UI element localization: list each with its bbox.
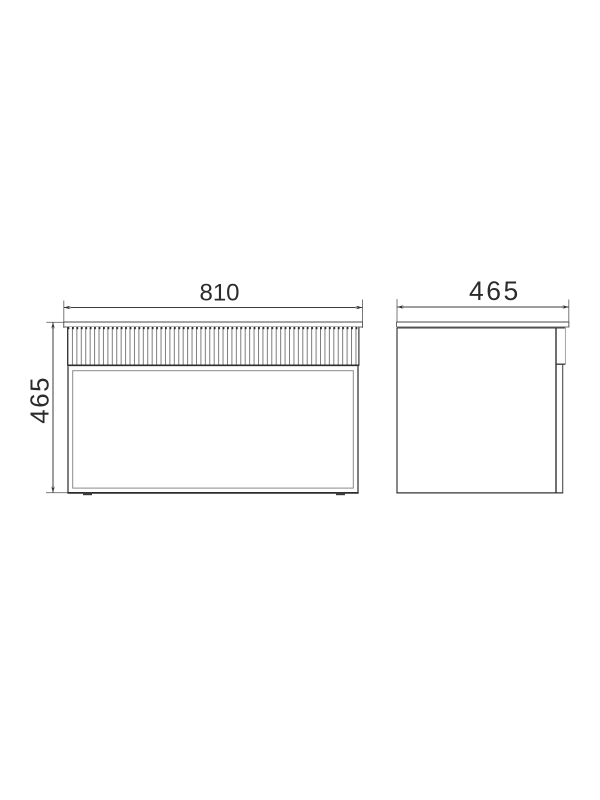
svg-text:810: 810 [199, 280, 239, 307]
svg-text:465: 465 [469, 276, 518, 306]
svg-text:465: 465 [27, 378, 55, 424]
